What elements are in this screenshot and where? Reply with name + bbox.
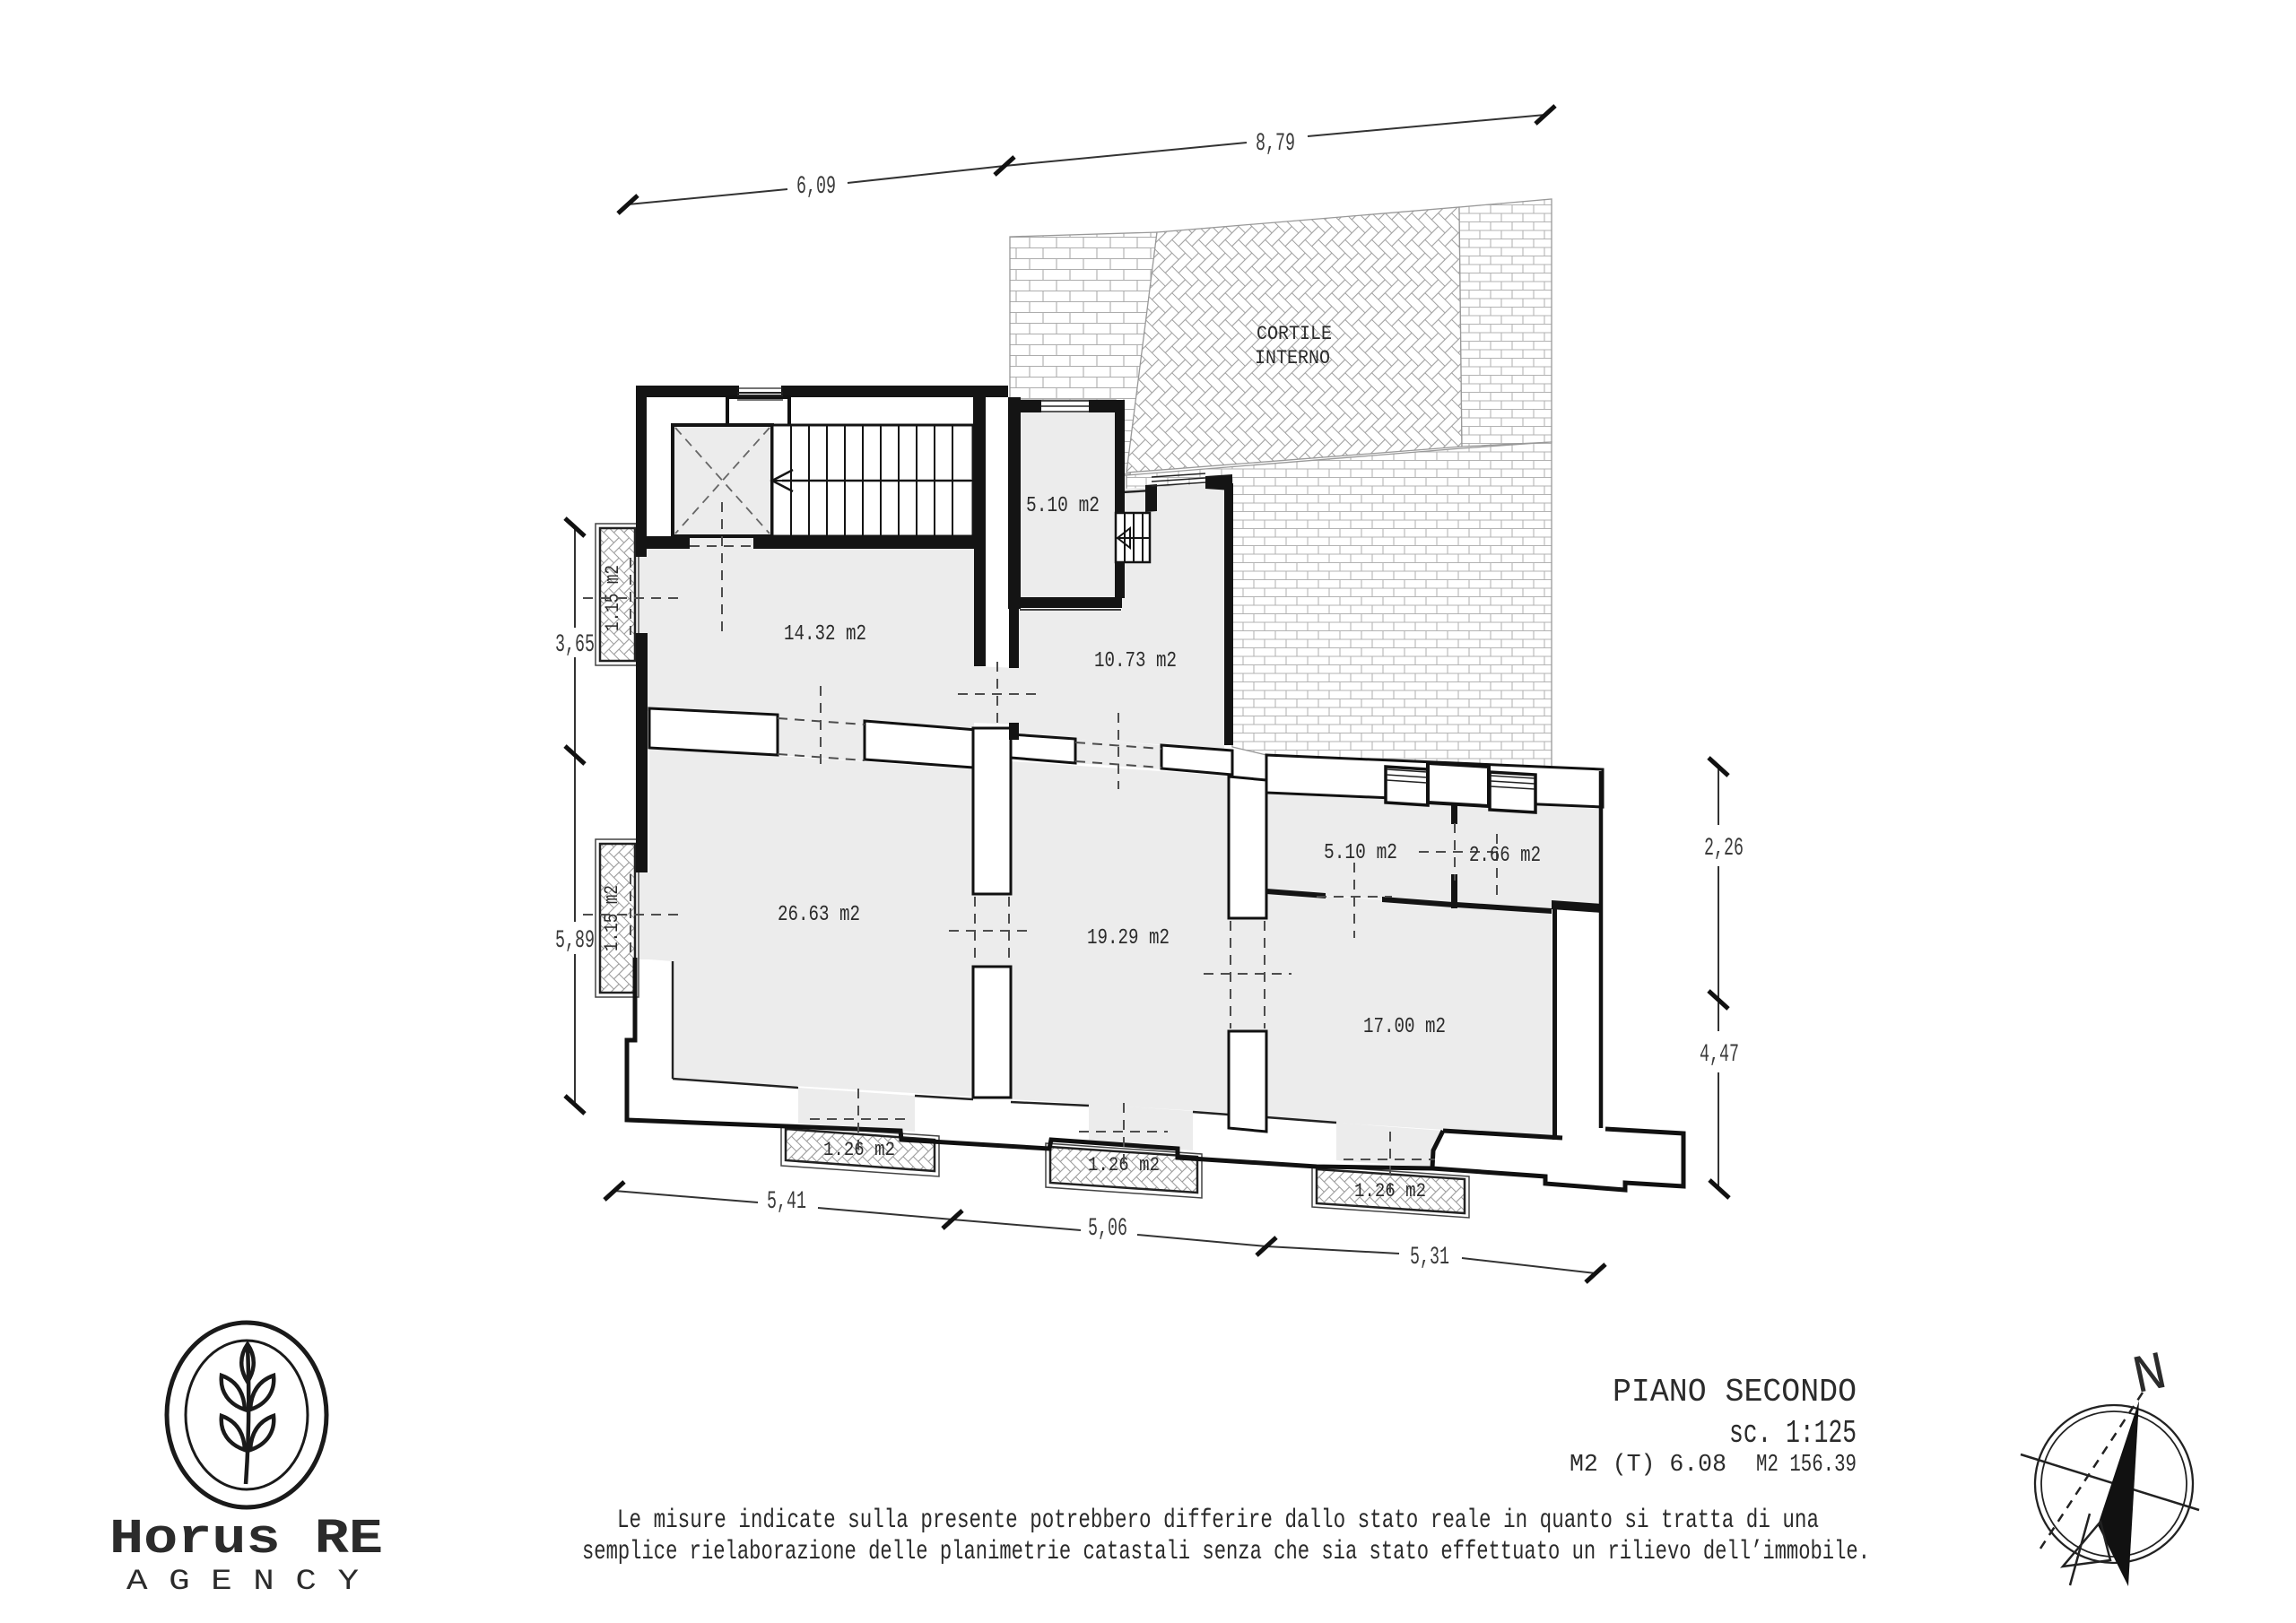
svg-text:4,47: 4,47 — [1700, 1041, 1739, 1069]
svg-text:semplice rielaborazione delle: semplice rielaborazione delle planimetri… — [582, 1537, 1870, 1567]
svg-text:sc. 1:125: sc. 1:125 — [1729, 1415, 1857, 1452]
svg-text:5,06: 5,06 — [1088, 1215, 1127, 1243]
svg-text:14.32 m2: 14.32 m2 — [784, 622, 866, 647]
svg-text:M2 (T) 6.08: M2 (T) 6.08 — [1570, 1452, 1726, 1479]
svg-text:5,31: 5,31 — [1410, 1244, 1449, 1271]
svg-text:3,65: 3,65 — [555, 631, 595, 659]
svg-text:5.10 m2: 5.10 m2 — [1324, 841, 1397, 865]
svg-text:Horus RE: Horus RE — [109, 1511, 383, 1567]
svg-text:PIANO SECONDO: PIANO SECONDO — [1613, 1374, 1857, 1410]
svg-text:8,79: 8,79 — [1256, 130, 1295, 158]
svg-text:1.15 m2: 1.15 m2 — [601, 885, 623, 951]
svg-text:6,09: 6,09 — [796, 173, 836, 201]
svg-text:17.00 m2: 17.00 m2 — [1363, 1015, 1446, 1039]
svg-text:INTERNO: INTERNO — [1255, 347, 1330, 369]
svg-text:5,89: 5,89 — [555, 927, 595, 955]
svg-text:2,26: 2,26 — [1704, 835, 1744, 863]
svg-text:M2 156.39: M2 156.39 — [1756, 1452, 1857, 1479]
svg-text:10.73 m2: 10.73 m2 — [1094, 649, 1177, 673]
svg-text:2.66 m2: 2.66 m2 — [1469, 844, 1541, 868]
svg-text:26.63 m2: 26.63 m2 — [778, 903, 860, 927]
svg-text:Le misure indicate sulla prese: Le misure indicate sulla presente potreb… — [617, 1506, 1819, 1536]
svg-text:A G E N C Y: A G E N C Y — [126, 1565, 359, 1598]
svg-text:19.29 m2: 19.29 m2 — [1087, 926, 1170, 950]
svg-text:CORTILE: CORTILE — [1257, 323, 1332, 345]
svg-text:5.10 m2: 5.10 m2 — [1026, 494, 1100, 518]
svg-text:5,41: 5,41 — [767, 1188, 806, 1216]
